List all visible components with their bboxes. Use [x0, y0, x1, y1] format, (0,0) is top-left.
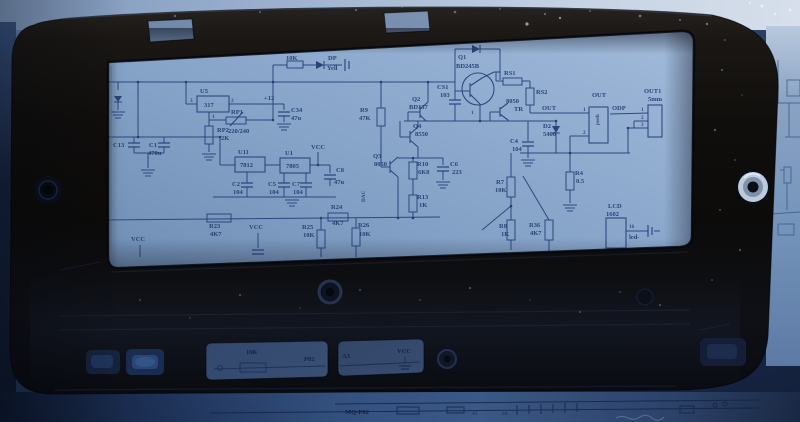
photo-of-case-on-schematic: RP 10K DP Yell U5 317 3 2 1 RP1 220/240 …: [0, 0, 800, 422]
screw-hole-bottom: [438, 350, 456, 368]
screw-hole-center: [319, 281, 341, 303]
screw-hole-faint: [637, 289, 653, 305]
screw-hole-left: [34, 176, 62, 204]
screw-hole-right: [735, 169, 771, 205]
window-edge-bevel: [108, 31, 694, 268]
plastic-case-frame: [0, 0, 800, 422]
